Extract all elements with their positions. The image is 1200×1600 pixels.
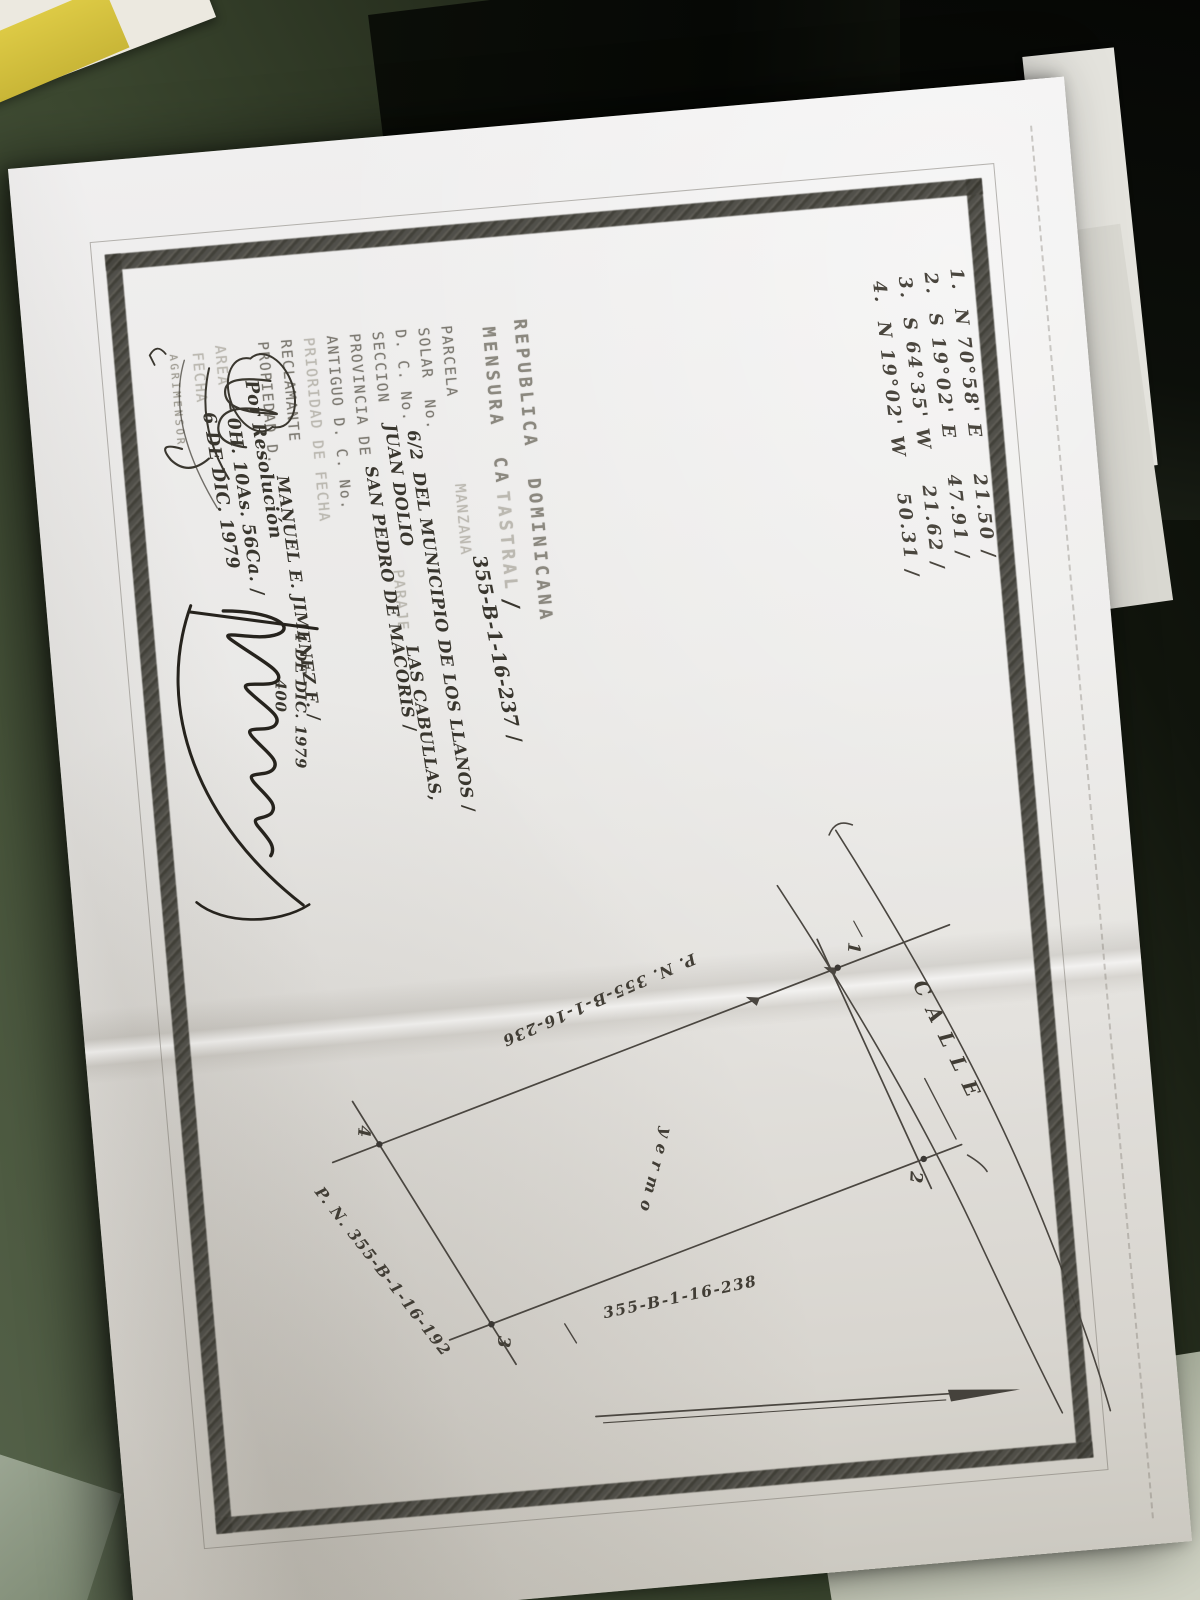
- yermo-label: y e r m o: [636, 1125, 677, 1215]
- calle-label: C A L L E: [908, 976, 986, 1103]
- corner-label-1: 1: [843, 941, 864, 954]
- dc-number-value: 6/2: [403, 429, 426, 462]
- tick-mark: [565, 1323, 577, 1344]
- corner-label-2: 2: [905, 1170, 926, 1184]
- north-arrow-icon: [596, 1379, 1021, 1432]
- tick-mark: [854, 921, 862, 938]
- tick-mark: [968, 1154, 988, 1174]
- calle-underline: [925, 1076, 956, 1141]
- neighbor-parcel-sw: P. N. 355-B-1-16-192: [311, 1182, 456, 1360]
- street-line-inner: [777, 865, 1062, 1434]
- corner-label-3: 3: [493, 1335, 514, 1348]
- neighbor-parcel-se: 355-B-1-16-238: [601, 1271, 759, 1322]
- paper: 1. N 70°58' E 21.50 ∕ 2. S 19°02' E 47.9…: [8, 77, 1192, 1600]
- corner-dot: [920, 1155, 927, 1162]
- photo-of-survey-document: 1. N 70°58' E 21.50 ∕ 2. S 19°02' E 47.9…: [0, 0, 1200, 1600]
- surveyor-signature: [126, 329, 332, 594]
- boundary-side-4-1: [317, 925, 966, 1163]
- neighbor-parcel-nw: P. N. 355-B-1-16-236: [499, 949, 700, 1051]
- photocopy-frame: 1. N 70°58' E 21.50 ∕ 2. S 19°02' E 47.9…: [90, 163, 1109, 1549]
- check-mark: ∕: [497, 599, 524, 610]
- corner-label-4: 4: [353, 1125, 374, 1138]
- arrowhead: [746, 996, 761, 1007]
- boundary-side-2-3: [437, 1145, 975, 1340]
